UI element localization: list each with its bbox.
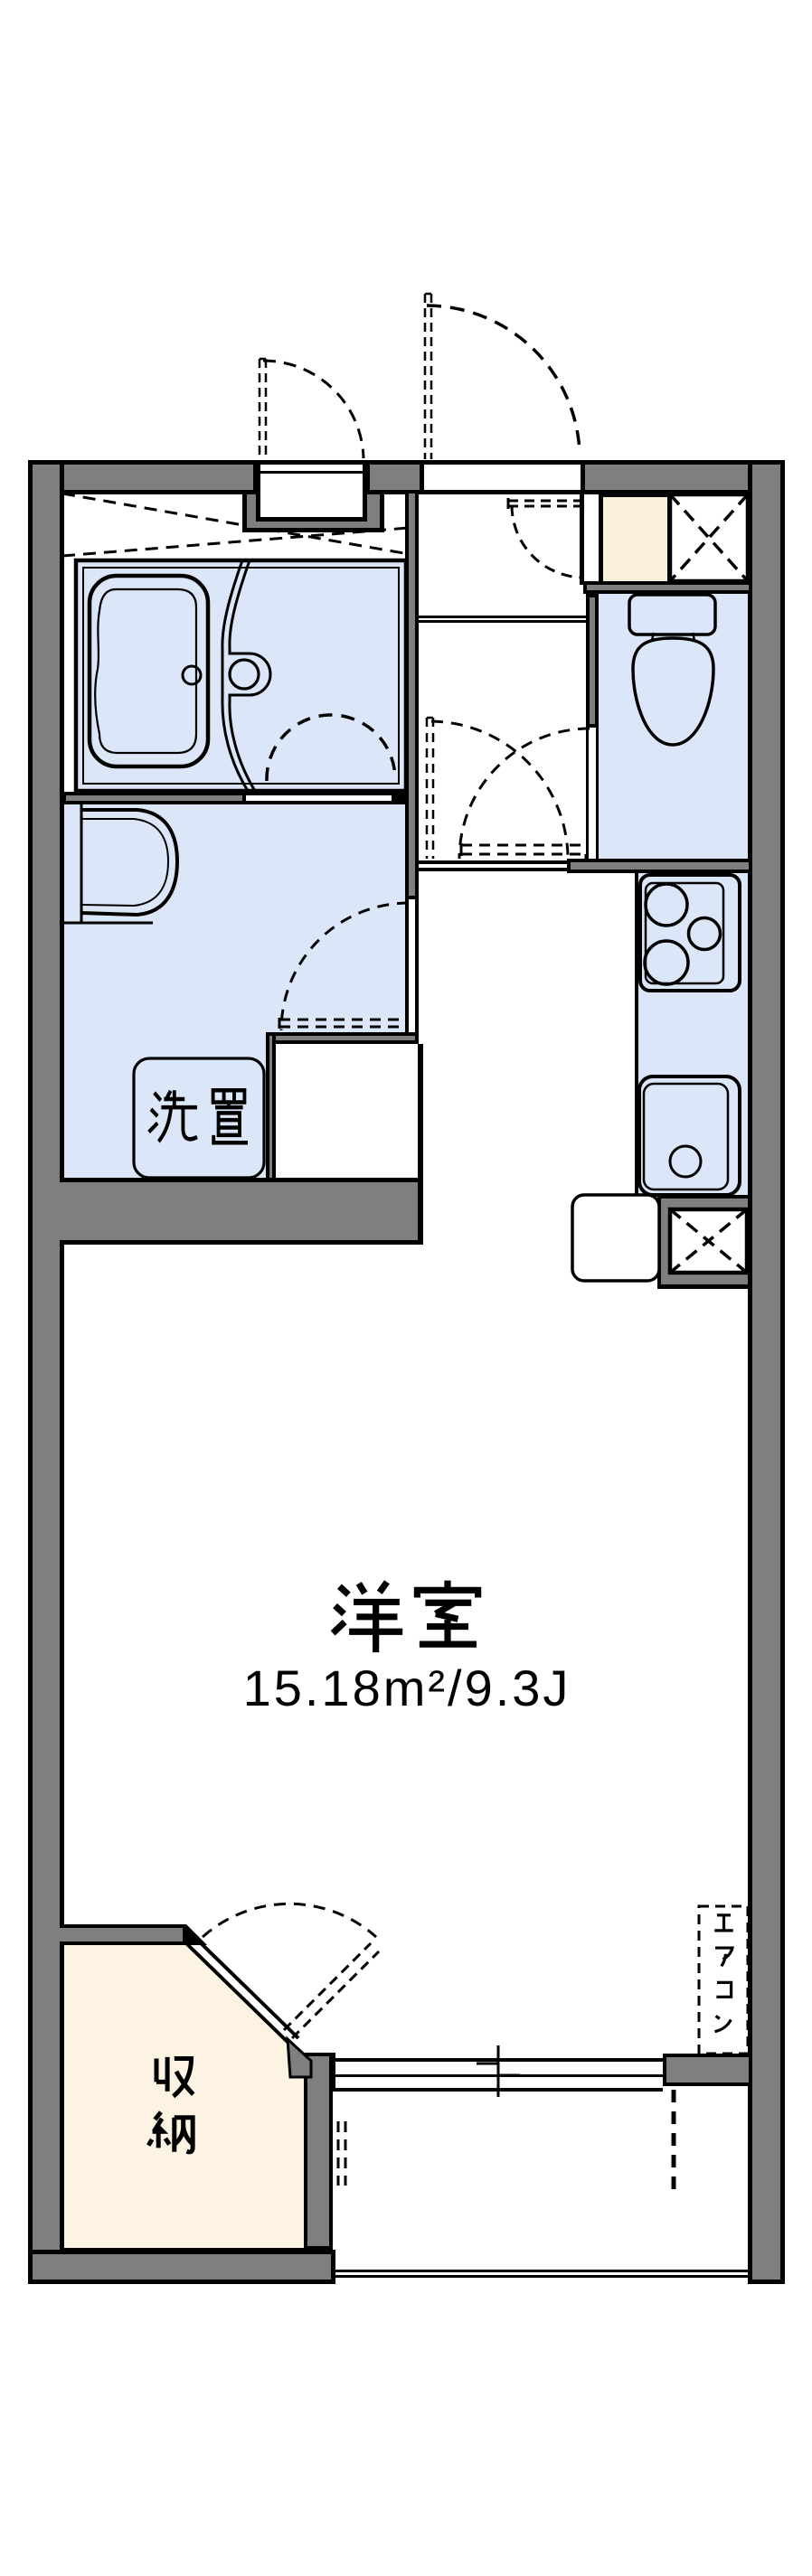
svg-text:15.18m²/9.3J: 15.18m²/9.3J xyxy=(243,1659,571,1716)
